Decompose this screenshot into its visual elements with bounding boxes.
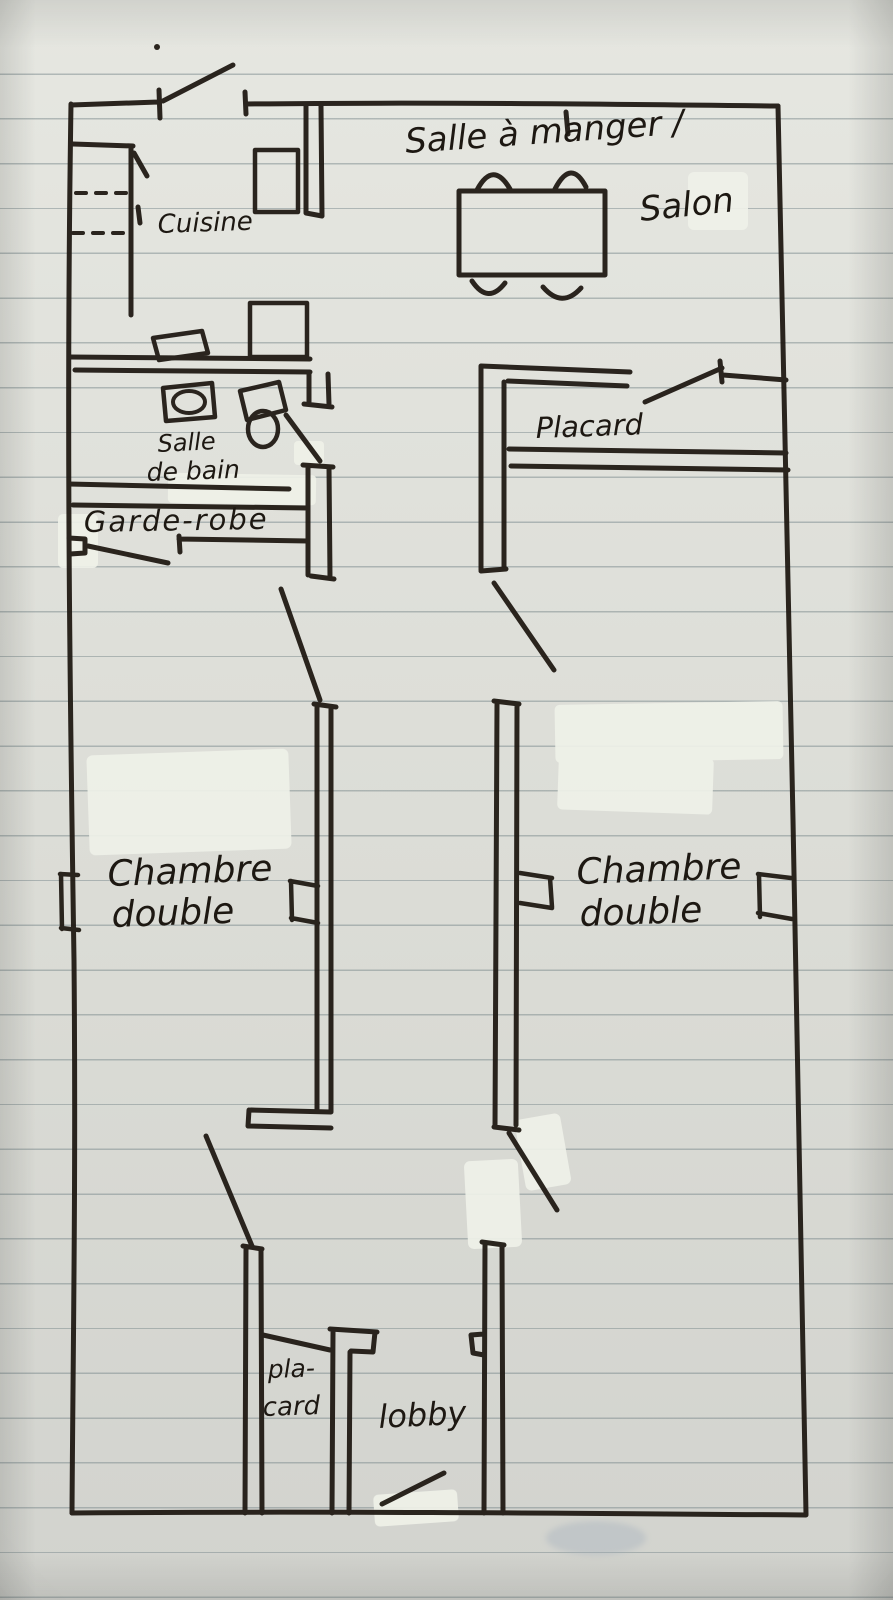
- label-bedroom-left-line2: double: [111, 891, 235, 936]
- faint-ink-smudge: [546, 1521, 646, 1555]
- bathroom-sink-icon: [163, 383, 215, 421]
- dining-table-icon: [459, 191, 605, 275]
- label-kitchen: Cuisine: [157, 207, 253, 240]
- wall-exterior-bottom: [72, 1512, 806, 1515]
- label-wardrobe: Garde-robe: [84, 502, 269, 539]
- floor-plan-drawing: Salle à manger / Salon Cuisine Salle de …: [0, 0, 893, 1600]
- white-out-patch: [472, 1194, 518, 1240]
- kitchen-counter-dashed-lines: [73, 193, 129, 233]
- closet-walls: [481, 361, 788, 571]
- lobby-walls: [330, 1242, 504, 1513]
- hallway-door-leaf-right: [494, 583, 554, 670]
- label-bedroom-right-line1: Chambre: [576, 846, 742, 893]
- label-bathroom-line1: Salle: [157, 427, 216, 458]
- label-bottom-closet-line1: pla-: [266, 1353, 315, 1384]
- wardrobe-door-leaf: [88, 546, 168, 563]
- ink-dot: [154, 44, 160, 50]
- bedroom-right-door-frame: [520, 873, 552, 908]
- label-closet: Placard: [535, 407, 644, 445]
- white-out-patch: [555, 701, 784, 763]
- label-bathroom-line2: de bain: [146, 455, 240, 487]
- refrigerator-icon: [255, 150, 298, 212]
- white-out-patch: [373, 1489, 459, 1527]
- white-out-patch: [557, 753, 714, 814]
- wall-exterior-right: [778, 106, 806, 1514]
- label-bedroom-right-line2: double: [579, 890, 703, 935]
- label-dining: Salle à manger /: [404, 102, 689, 162]
- entry-door-leaf: [163, 65, 233, 101]
- bathroom-sink-basin: [173, 391, 205, 413]
- bottom-closet-door-leaf: [206, 1136, 252, 1246]
- label-bedroom-left-line1: Chambre: [107, 848, 273, 895]
- floor-plan-photo: Salle à manger / Salon Cuisine Salle de …: [0, 0, 893, 1600]
- kitchen-interior-walls: [73, 144, 147, 315]
- label-lobby: lobby: [377, 1393, 468, 1436]
- closet-door-leaf: [645, 368, 722, 402]
- kitchen-bottom-wall: [70, 357, 310, 372]
- kitchen-dining-divider-wall: [306, 106, 322, 216]
- label-bottom-closet-line2: card: [262, 1391, 321, 1423]
- toilet-tank-icon: [240, 382, 286, 420]
- bedroom-left-door-frame: [290, 881, 318, 923]
- hallway-door-leaf-left: [281, 589, 320, 700]
- bedroom-right-window: [758, 874, 792, 919]
- bedroom-left-window: [60, 874, 79, 930]
- hallway-right-wall: [494, 701, 519, 1130]
- wall-exterior-left: [69, 104, 75, 1513]
- stove-icon: [250, 303, 307, 357]
- white-out-patch: [86, 749, 291, 856]
